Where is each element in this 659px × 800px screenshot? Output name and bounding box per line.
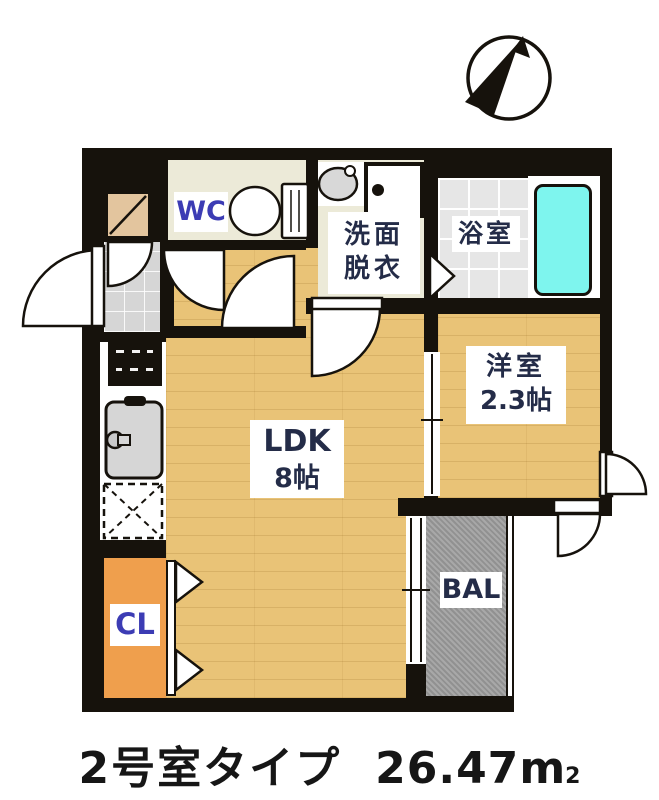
entrance-door-arc-icon: [23, 246, 104, 326]
washer-pan-icon: [366, 164, 422, 216]
room-label-wc: WC: [174, 192, 228, 232]
bath-label-text: 浴室: [458, 218, 514, 251]
ldk-label-line1: LDK: [263, 422, 330, 461]
western-bottom-door-arc-icon: [554, 500, 600, 556]
wc-door-arc-icon: [164, 250, 224, 310]
room-label-closet: CL: [110, 604, 160, 646]
shoe-cabinet-diagonal: [110, 196, 146, 234]
washroom-label-line1: 洗面: [344, 219, 404, 253]
vanity-sink-icon: [318, 162, 364, 206]
room-label-bath: 浴室: [452, 216, 520, 252]
closet-door-triangle-icon: [176, 650, 202, 690]
sliding-partition-icon: [421, 354, 443, 494]
wc-label-text: WC: [176, 194, 226, 229]
hall-door-arc-icon: [222, 256, 294, 328]
ldk-label-line2: 8帖: [274, 461, 320, 496]
compass-north-icon: [465, 36, 550, 119]
bath-door-triangle-icon: [430, 254, 454, 298]
refrigerator-icon: [104, 484, 162, 538]
stove-icon: [108, 340, 162, 386]
kitchen-sink-icon: [106, 396, 162, 478]
floor-plan-page: WC 洗面 脱衣 浴室 洋室 2.3帖 LDK 8帖 CL BAL 2号室タイプ…: [0, 0, 659, 800]
room-label-balcony: BAL: [440, 572, 502, 608]
balcony-label-text: BAL: [442, 572, 501, 607]
room-label-western: 洋室 2.3帖: [466, 346, 566, 424]
closet-door-triangle-icon: [176, 562, 202, 602]
western-side-door-arc-icon: [600, 452, 646, 496]
genkan-door-arc-icon: [108, 242, 152, 286]
washroom-door-arc-icon: [312, 298, 382, 376]
washroom-label-line2: 脱衣: [344, 253, 404, 287]
room-label-ldk: LDK 8帖: [250, 420, 344, 498]
balcony-window-icon: [402, 518, 430, 662]
western-label-line1: 洋室: [486, 351, 546, 385]
closet-label-text: CL: [115, 606, 155, 644]
room-label-washroom: 洗面 脱衣: [328, 212, 420, 294]
toilet-icon: [230, 184, 308, 238]
western-label-line2: 2.3帖: [480, 385, 552, 419]
